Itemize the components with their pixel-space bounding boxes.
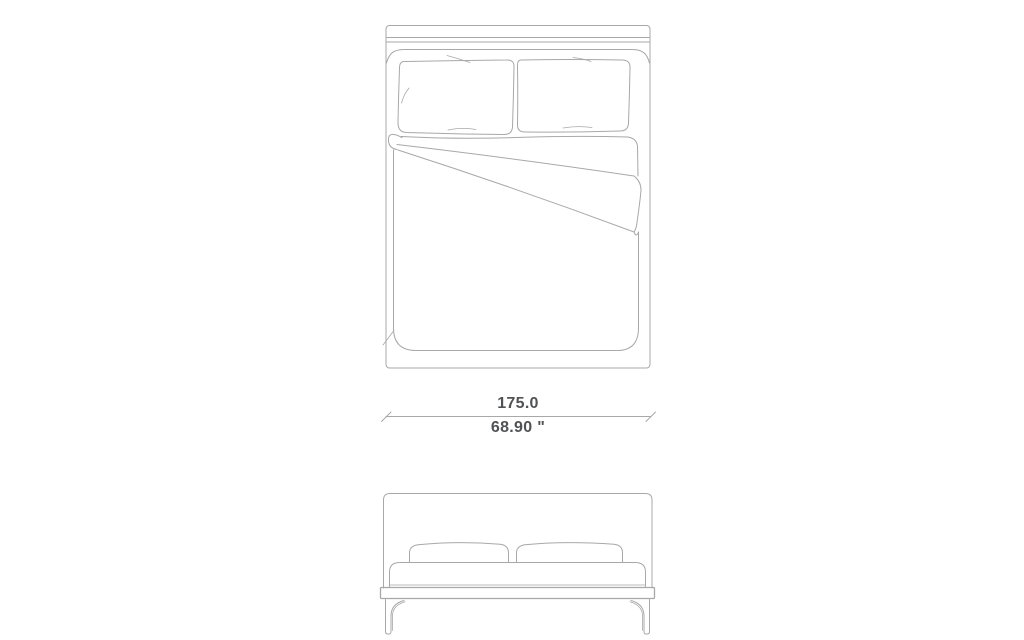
bed-front-view [381, 494, 655, 635]
bed-top-view [383, 26, 650, 369]
headboard-top-edge [387, 38, 650, 43]
headboard-front [384, 494, 653, 589]
pillow-right-creases [563, 58, 592, 129]
duvet-outline [394, 136, 639, 350]
pillow-right [517, 60, 630, 133]
pillow-front-right [517, 543, 623, 563]
pillow-left [398, 60, 514, 135]
pillow-left-creases [402, 56, 477, 131]
bed-technical-drawing-svg [0, 0, 1024, 640]
bed-dimension-diagram: 175.0 68.90 " [0, 0, 1024, 640]
dimension-label-inches: 68.90 " [418, 419, 618, 437]
dimension-label-cm: 175.0 [418, 395, 618, 413]
bed-rail [381, 588, 655, 599]
duvet-fold [388, 134, 641, 235]
duvet-corner-crease [383, 331, 394, 345]
mattress-front [390, 563, 646, 588]
leg-left [386, 600, 405, 635]
pillow-front-left [410, 543, 509, 563]
leg-right [631, 600, 650, 635]
